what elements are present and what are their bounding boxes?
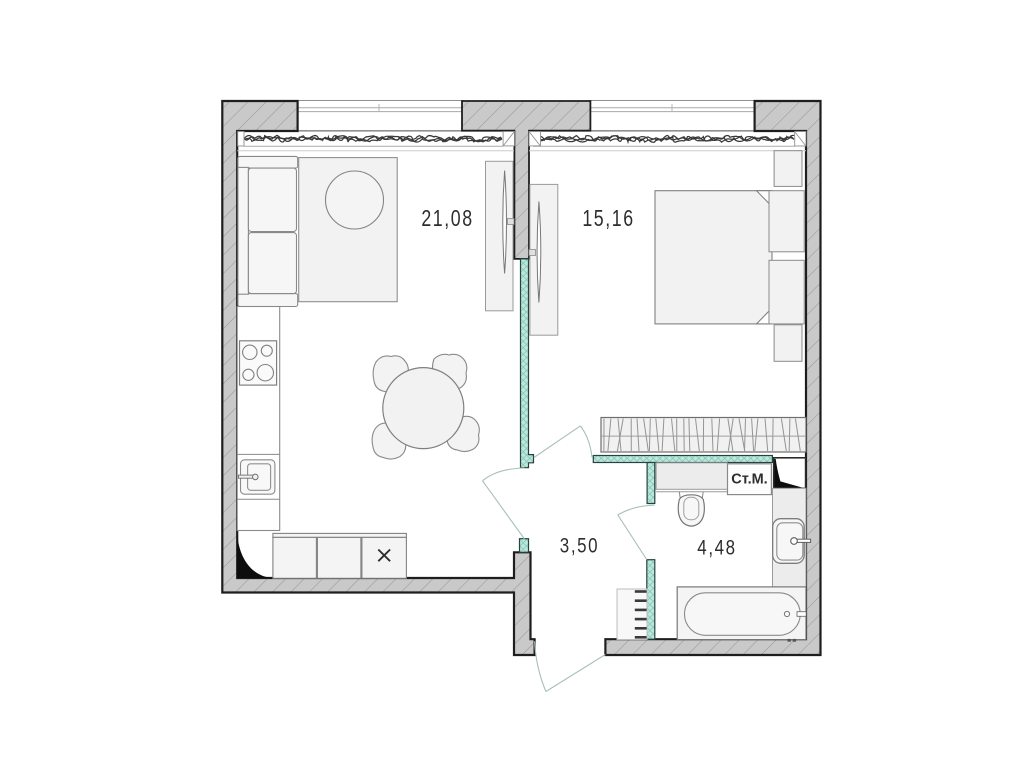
svg-text:Ст.М.: Ст.М. bbox=[731, 472, 767, 488]
svg-text:4,48: 4,48 bbox=[697, 537, 736, 560]
svg-text:3,50: 3,50 bbox=[560, 535, 599, 558]
svg-text:15,16: 15,16 bbox=[582, 206, 634, 232]
svg-text:21,08: 21,08 bbox=[421, 206, 473, 232]
